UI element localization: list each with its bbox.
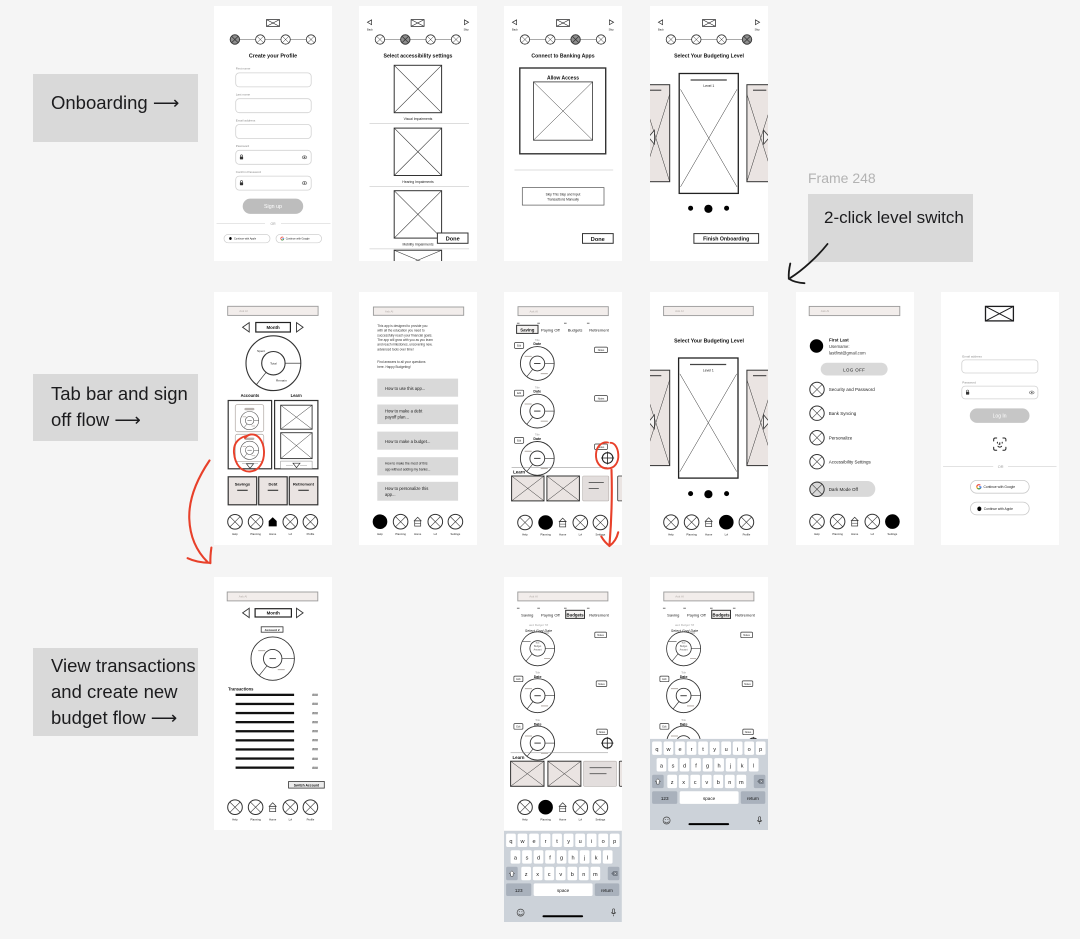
svg-text:with all the education you nee: with all the education you need to <box>377 329 425 333</box>
svg-text:Visual Impairments: Visual Impairments <box>404 117 433 121</box>
svg-text:Settings: Settings <box>596 817 606 821</box>
svg-text:q: q <box>510 838 513 844</box>
svg-text:###: ### <box>312 730 318 734</box>
svg-text:Continue with Apple: Continue with Apple <box>234 237 257 240</box>
svg-text:Learn: Learn <box>513 469 525 474</box>
svg-text:v: v <box>705 780 708 786</box>
svg-text:k: k <box>595 855 598 861</box>
svg-text:Log In: Log In <box>992 414 1006 420</box>
svg-text:Settings: Settings <box>887 532 897 536</box>
svg-text:Home: Home <box>851 532 859 536</box>
svg-text:successfully reach your financ: successfully reach your financial goals. <box>377 333 432 337</box>
svg-text:i: i <box>591 838 592 844</box>
svg-text:Budgets: Budgets <box>712 612 730 617</box>
svg-text:Email address: Email address <box>235 118 255 122</box>
svg-text:s: s <box>672 763 675 769</box>
svg-text:z: z <box>525 872 528 878</box>
svg-text:Retirement: Retirement <box>589 327 609 332</box>
svg-text:d: d <box>683 763 686 769</box>
svg-text:Budgets: Budgets <box>568 327 583 332</box>
svg-text:Savings: Savings <box>234 482 250 487</box>
svg-text:First name: First name <box>235 66 250 70</box>
svg-text:lastfirst@gmail.com: lastfirst@gmail.com <box>829 350 866 355</box>
svg-text:Find answers to all your quest: Find answers to all your questions <box>377 360 426 364</box>
svg-text:v: v <box>560 872 563 878</box>
svg-text:Date: Date <box>533 390 541 394</box>
svg-text:app...: app... <box>385 492 395 497</box>
svg-text:Ask AI: Ask AI <box>820 309 829 313</box>
svg-text:Budgets: Budgets <box>566 612 584 617</box>
svg-text:Connect to Banking Apps: Connect to Banking Apps <box>531 53 594 59</box>
svg-text:Notes: Notes <box>598 397 605 400</box>
svg-text:Select Your Budgeting Level: Select Your Budgeting Level <box>674 339 744 345</box>
svg-text:Notes: Notes <box>597 634 604 637</box>
svg-text:Ask AI: Ask AI <box>385 309 394 313</box>
svg-text:The app will grow with you as: The app will grow with you as you learn <box>377 338 433 342</box>
svg-text:Password: Password <box>235 144 249 148</box>
svg-text:Paying Off: Paying Off <box>541 327 560 332</box>
svg-text:e: e <box>678 747 681 753</box>
svg-text:Edit: Edit <box>536 641 540 644</box>
svg-text:Ask AI: Ask AI <box>530 309 539 313</box>
svg-text:Home: Home <box>705 532 713 536</box>
svg-text:Date: Date <box>533 437 541 441</box>
svg-text:space: space <box>557 887 570 892</box>
svg-text:###: ### <box>312 711 318 715</box>
svg-text:Home: Home <box>559 817 567 821</box>
svg-text:How to make a debt: How to make a debt <box>385 409 423 414</box>
svg-text:Username:: Username: <box>829 344 849 349</box>
svg-text:Continue with Apple: Continue with Apple <box>983 507 1012 511</box>
svg-text:o: o <box>748 747 751 753</box>
svg-text:Notes: Notes <box>599 731 606 734</box>
svg-text:Edit: Edit <box>662 725 666 728</box>
svg-text:return: return <box>601 887 613 892</box>
svg-text:Allow Access: Allow Access <box>547 75 579 81</box>
svg-text:Month: Month <box>266 325 279 330</box>
svg-text:aw1 Budget Till: aw1 Budget Till <box>675 623 694 627</box>
svg-text:OR: OR <box>997 465 1003 469</box>
svg-text:Done: Done <box>591 236 605 242</box>
svg-text:o: o <box>602 838 605 844</box>
svg-text:u: u <box>579 838 582 844</box>
svg-text:advanced tools over time!: advanced tools over time! <box>377 347 413 351</box>
svg-text:Home: Home <box>559 533 567 537</box>
svg-text:m: m <box>593 872 598 878</box>
svg-text:Edit: Edit <box>662 678 666 681</box>
svg-text:123: 123 <box>661 796 669 801</box>
svg-text:Planning: Planning <box>540 817 551 821</box>
svg-text:Level 1: Level 1 <box>703 369 714 373</box>
svg-text:y: y <box>567 838 570 844</box>
svg-text:Sign up: Sign up <box>264 204 282 210</box>
svg-text:First Last: First Last <box>829 338 849 343</box>
svg-text:k: k <box>741 763 744 769</box>
svg-text:Skip: Skip <box>755 27 761 31</box>
svg-text:j: j <box>583 855 585 861</box>
svg-text:###: ### <box>312 748 318 752</box>
svg-text:Help: Help <box>814 532 820 536</box>
svg-text:Help: Help <box>668 532 674 536</box>
svg-text:c: c <box>548 872 551 878</box>
svg-text:Account 2: Account 2 <box>264 628 279 632</box>
svg-text:Accessibility Settings: Accessibility Settings <box>828 459 871 464</box>
svg-text:Planning: Planning <box>686 532 697 536</box>
svg-text:Retirement: Retirement <box>735 612 755 617</box>
svg-text:Back: Back <box>658 27 664 31</box>
svg-text:Learn: Learn <box>290 393 302 398</box>
svg-text:z: z <box>671 780 674 786</box>
svg-text:Retirement: Retirement <box>589 612 609 617</box>
svg-text:Lvl: Lvl <box>579 817 583 821</box>
svg-text:Skip This Step and Input: Skip This Step and Input <box>546 192 581 196</box>
svg-text:Budget: Budget <box>534 645 542 648</box>
svg-text:Help: Help <box>232 817 238 821</box>
svg-text:OR: OR <box>270 222 276 226</box>
svg-text:Notes: Notes <box>745 731 752 734</box>
svg-text:Lvl: Lvl <box>288 532 292 536</box>
svg-text:x: x <box>536 872 539 878</box>
svg-text:Title: Title <box>535 670 540 674</box>
svg-text:Mobility Impairments: Mobility Impairments <box>402 242 433 246</box>
svg-text:Ask AI: Ask AI <box>675 595 684 599</box>
svg-text:Paying Off: Paying Off <box>687 612 706 617</box>
svg-text:Continue with Google: Continue with Google <box>983 485 1015 489</box>
svg-text:payoff plan...: payoff plan... <box>385 415 409 420</box>
svg-text:Paying Off: Paying Off <box>541 612 560 617</box>
svg-text:Last name: Last name <box>235 92 250 96</box>
svg-text:n: n <box>728 780 731 786</box>
svg-text:Planning: Planning <box>395 532 406 536</box>
svg-text:and reach milestones, uncoveri: and reach milestones, uncovering new, <box>377 343 432 347</box>
svg-text:Lvl: Lvl <box>434 532 438 536</box>
svg-text:Settings: Settings <box>596 533 606 537</box>
svg-text:Saving: Saving <box>521 612 533 617</box>
svg-text:###: ### <box>312 766 318 770</box>
svg-text:###: ### <box>312 720 318 724</box>
svg-text:Edit: Edit <box>516 678 520 681</box>
svg-text:Saving: Saving <box>667 612 679 617</box>
svg-text:Remain: Remain <box>276 378 287 382</box>
svg-text:Edit: Edit <box>517 392 521 395</box>
svg-text:Edit: Edit <box>517 439 521 442</box>
svg-text:###: ### <box>312 693 318 697</box>
svg-text:Learn: Learn <box>513 755 525 760</box>
svg-text:Password: Password <box>962 381 976 385</box>
svg-text:Continue with Google: Continue with Google <box>285 237 310 240</box>
svg-text:y: y <box>713 747 716 753</box>
svg-text:Planning: Planning <box>540 533 551 537</box>
svg-text:Back: Back <box>512 27 518 31</box>
svg-text:Ask AI: Ask AI <box>239 309 248 313</box>
svg-text:g: g <box>560 855 563 861</box>
svg-text:Spent: Spent <box>257 349 265 353</box>
svg-text:Create your Profile: Create your Profile <box>248 53 296 59</box>
svg-text:Title: Title <box>681 670 686 674</box>
svg-text:l: l <box>607 855 608 861</box>
svg-text:b: b <box>717 780 720 786</box>
svg-text:This app is designed to provid: This app is designed to provide you <box>377 324 427 328</box>
svg-text:Profile: Profile <box>306 817 314 821</box>
svg-text:Settings: Settings <box>451 532 461 536</box>
svg-text:Hearing Impairments: Hearing Impairments <box>402 179 434 183</box>
svg-text:123: 123 <box>515 887 523 892</box>
svg-text:Home: Home <box>414 532 422 536</box>
svg-text:Edit: Edit <box>517 345 521 348</box>
svg-text:Notes: Notes <box>744 683 751 686</box>
svg-text:p: p <box>613 838 616 844</box>
svg-text:Edit: Edit <box>682 641 686 644</box>
svg-text:Transactions: Transactions <box>228 687 254 692</box>
svg-text:Ask AI: Ask AI <box>238 595 247 599</box>
svg-text:r: r <box>545 838 547 844</box>
svg-text:g: g <box>706 763 709 769</box>
svg-text:return: return <box>747 796 759 801</box>
svg-text:Accounts: Accounts <box>240 393 259 398</box>
svg-text:app without adding my banks...: app without adding my banks... <box>385 467 431 471</box>
svg-text:b: b <box>571 872 574 878</box>
svg-text:Profile: Profile <box>306 532 314 536</box>
svg-text:Lvl: Lvl <box>725 532 729 536</box>
svg-text:Help: Help <box>377 532 383 536</box>
svg-text:Select accessibility settings: Select accessibility settings <box>384 53 453 59</box>
svg-text:m: m <box>739 780 744 786</box>
svg-text:d: d <box>537 855 540 861</box>
svg-text:Personalize: Personalize <box>828 435 852 440</box>
svg-text:Date: Date <box>533 342 541 346</box>
svg-text:x: x <box>682 780 685 786</box>
svg-text:Skip: Skip <box>609 27 615 31</box>
svg-text:Amount: Amount <box>534 648 542 651</box>
svg-text:Select Your Budgeting Level: Select Your Budgeting Level <box>674 53 744 59</box>
svg-text:###: ### <box>312 739 318 743</box>
svg-text:How to make a budget...: How to make a budget... <box>385 439 430 444</box>
svg-text:Email address: Email address <box>962 354 982 358</box>
svg-text:Title: Title <box>535 718 540 722</box>
svg-text:Notes: Notes <box>598 683 605 686</box>
svg-text:Transactions Manually: Transactions Manually <box>547 197 579 201</box>
svg-text:Debt: Debt <box>268 482 278 487</box>
svg-text:Profile: Profile <box>743 532 751 536</box>
svg-text:LOG OFF: LOG OFF <box>843 368 865 373</box>
svg-text:Bank Syncing: Bank Syncing <box>828 411 856 416</box>
svg-text:Home: Home <box>269 532 277 536</box>
svg-text:here. Happy Budgeting!: here. Happy Budgeting! <box>377 365 411 369</box>
svg-text:s: s <box>526 855 529 861</box>
svg-text:n: n <box>582 872 585 878</box>
svg-text:Retirement: Retirement <box>293 482 315 487</box>
svg-text:Planning: Planning <box>250 817 261 821</box>
svg-text:Month: Month <box>266 611 279 616</box>
svg-text:How to make the most of this: How to make the most of this <box>385 462 428 466</box>
svg-text:How to use this app...: How to use this app... <box>385 386 425 391</box>
svg-text:###: ### <box>312 702 318 706</box>
svg-text:Ask AI: Ask AI <box>529 595 538 599</box>
svg-text:Dark Mode Off: Dark Mode Off <box>828 487 858 492</box>
svg-text:Home: Home <box>269 817 277 821</box>
svg-text:l: l <box>753 763 754 769</box>
svg-text:Notes: Notes <box>743 634 750 637</box>
svg-text:Skip: Skip <box>464 27 470 31</box>
svg-text:p: p <box>759 747 762 753</box>
svg-text:Budget: Budget <box>680 645 688 648</box>
svg-text:###: ### <box>312 757 318 761</box>
svg-text:c: c <box>694 780 697 786</box>
svg-text:Switch Account: Switch Account <box>293 784 319 788</box>
svg-text:Amount: Amount <box>680 648 688 651</box>
svg-text:Ask AI: Ask AI <box>675 309 684 313</box>
svg-text:Help: Help <box>522 533 528 537</box>
svg-text:Back: Back <box>367 27 373 31</box>
svg-text:Total: Total <box>270 361 277 365</box>
svg-text:Finish Onboarding: Finish Onboarding <box>703 236 749 242</box>
svg-text:Done: Done <box>446 236 460 242</box>
svg-text:Planning: Planning <box>250 532 261 536</box>
svg-text:space: space <box>703 796 716 801</box>
svg-text:h: h <box>718 763 721 769</box>
svg-text:Title: Title <box>681 718 686 722</box>
svg-text:j: j <box>729 763 731 769</box>
svg-text:Lvl: Lvl <box>579 533 583 537</box>
svg-text:Help: Help <box>232 532 238 536</box>
svg-text:Notes: Notes <box>598 349 605 352</box>
svg-text:Security and Password: Security and Password <box>828 387 875 392</box>
svg-text:i: i <box>737 747 738 753</box>
svg-text:e: e <box>533 838 536 844</box>
svg-text:Level 1: Level 1 <box>703 84 714 88</box>
svg-text:Lvl: Lvl <box>870 532 874 536</box>
svg-text:Edit: Edit <box>516 725 520 728</box>
svg-text:Planning: Planning <box>832 532 843 536</box>
svg-text:h: h <box>572 855 575 861</box>
svg-text:How to personalize this: How to personalize this <box>385 486 428 491</box>
svg-text:Saving: Saving <box>520 327 534 332</box>
svg-text:aw1 Budget Till: aw1 Budget Till <box>529 623 548 627</box>
svg-text:q: q <box>655 747 658 753</box>
svg-text:u: u <box>725 747 728 753</box>
svg-text:Confirm Password: Confirm Password <box>235 169 261 173</box>
svg-text:r: r <box>691 747 693 753</box>
svg-text:Lvl: Lvl <box>288 817 292 821</box>
svg-text:Help: Help <box>522 817 528 821</box>
